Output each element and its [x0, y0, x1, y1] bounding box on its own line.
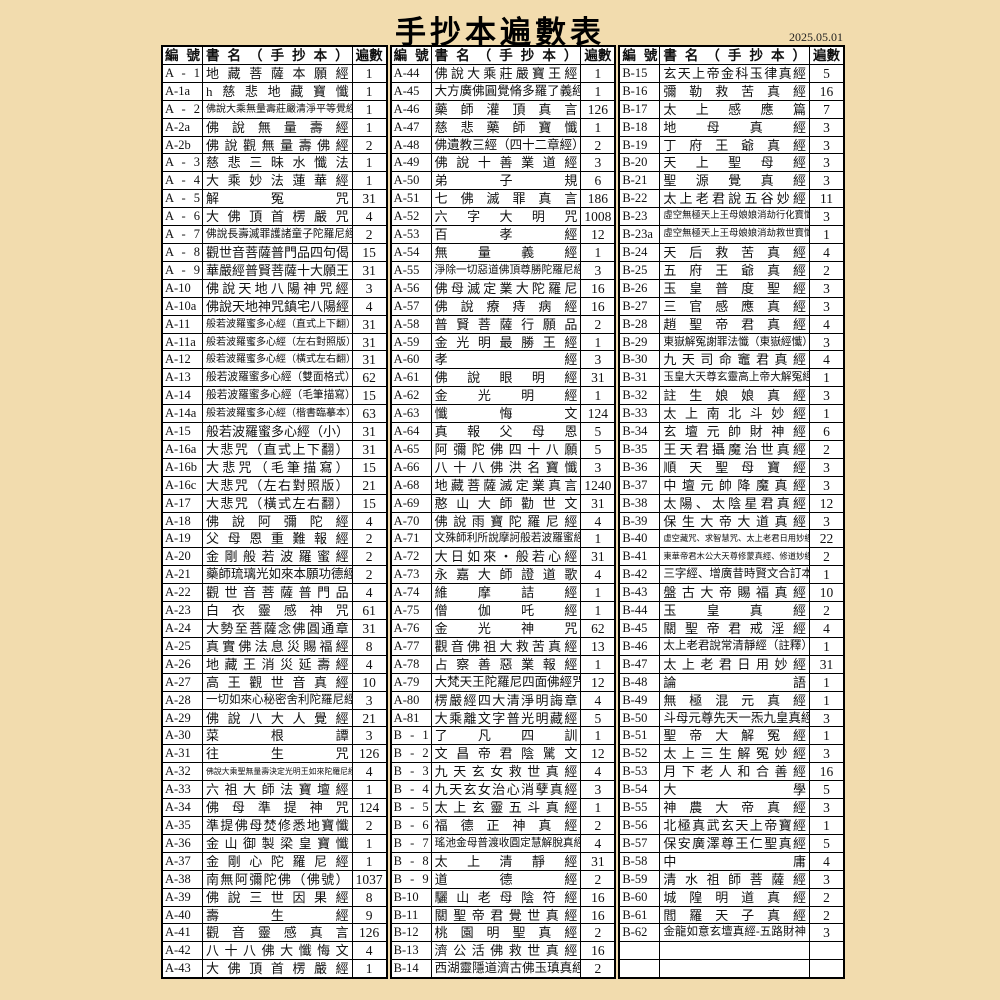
row-id: A-21 [163, 566, 203, 583]
row-title: 地藏王消災延壽經 [203, 656, 353, 673]
row-id: B-22 [620, 190, 660, 207]
row-id: A-77 [392, 638, 432, 655]
row-title: 般若波羅蜜多心經（直式上下翻） [203, 316, 353, 333]
row-count: 62 [581, 620, 614, 637]
row-title: 玉皇普度聖經 [660, 280, 810, 297]
row-title: 神農大帝真經 [660, 799, 810, 816]
row-id: A-10 [163, 280, 203, 297]
row-title: 王天君攝魔治世真經 [660, 441, 810, 458]
table-row: A-70佛說雨寶陀羅尼經4 [392, 512, 615, 530]
row-title: 佛說大乘無量壽莊嚴清淨平等覺經 [203, 101, 353, 118]
row-count: 4 [581, 692, 614, 709]
row-count: 31 [353, 262, 386, 279]
row-title: 金光明經 [432, 387, 582, 404]
table-row: B-12桃園明聖真經2 [392, 923, 615, 941]
row-count: 12 [581, 745, 614, 762]
row-count: 7 [810, 101, 843, 118]
row-count: 3 [810, 137, 843, 154]
table-row: B-41東華帝君木公大天尊修蒙真經、修道妙經2 [620, 547, 843, 565]
row-id: B - 3 [392, 763, 432, 780]
row-id: B-33 [620, 405, 660, 422]
table-row: A-10佛說天地八陽神咒經3 [163, 279, 386, 297]
row-count: 1 [581, 387, 614, 404]
row-title: 大梵天王陀羅尼四面佛經咒 [432, 674, 582, 691]
row-count: 3 [581, 459, 614, 476]
row-count: 31 [810, 656, 843, 673]
row-title: 孝經 [432, 351, 582, 368]
row-id: A-74 [392, 584, 432, 601]
row-id: A-70 [392, 513, 432, 530]
table-row: B-21聖源覺真經3 [620, 171, 843, 189]
row-title: 瑤池金母普渡收圓定慧解脫真經 [432, 835, 582, 852]
row-title: 盤古大帝賜福真經 [660, 584, 810, 601]
row-title: 般若波羅蜜多心經（小） [203, 423, 353, 440]
row-id: B-45 [620, 620, 660, 637]
row-id: A-65 [392, 441, 432, 458]
row-count: 3 [810, 799, 843, 816]
row-title: 佛說無量壽經 [203, 119, 353, 136]
row-title: 北極真武玄天上帝寶經 [660, 817, 810, 834]
row-count: 2 [353, 226, 386, 243]
row-count: 1 [810, 727, 843, 744]
table-row: A-23白衣靈感神咒61 [163, 601, 386, 619]
row-id: A-20 [163, 548, 203, 565]
row-title: 天上聖母經 [660, 154, 810, 171]
table-column: 編號書名（手抄本）遍數A-44佛說大乘莊嚴寶王經1A-45大方廣佛圓覺脩多羅了義… [390, 45, 617, 979]
row-id: B - 7 [392, 835, 432, 852]
header-id: 編號 [620, 47, 660, 64]
row-title: 清水祖師菩薩經 [660, 871, 810, 888]
table-row: A-48佛遺教三經（四十二章經）2 [392, 136, 615, 154]
table-row: B-36順天聖母寶經3 [620, 458, 843, 476]
table-row: A-26地藏王消災延壽經4 [163, 655, 386, 673]
table-row: B-55神農大帝真經3 [620, 798, 843, 816]
row-id: B-28 [620, 316, 660, 333]
row-title: 佛說療痔病經 [432, 298, 582, 315]
row-id: A-42 [163, 942, 203, 959]
table-row: B-31玉皇大天尊玄靈高上帝大解冤經1 [620, 368, 843, 386]
row-count: 31 [353, 334, 386, 351]
row-title: 玉皇真經 [660, 602, 810, 619]
row-count: 4 [581, 763, 614, 780]
table-row: A-13般若波羅蜜多心經（雙面格式）62 [163, 368, 386, 386]
row-id: B-25 [620, 262, 660, 279]
row-title: 太上老君說常清靜經（註釋） [660, 638, 810, 655]
row-count: 31 [581, 548, 614, 565]
row-id: A-49 [392, 154, 432, 171]
row-title: 憨山大師勸世文 [432, 495, 582, 512]
row-title: 普賢菩薩行願品 [432, 316, 582, 333]
row-id: B-27 [620, 298, 660, 315]
row-count: 1 [810, 674, 843, 691]
row-id: A-26 [163, 656, 203, 673]
table-row: A-21藥師琉璃光如來本願功德經2 [163, 565, 386, 583]
table-row: A - 3慈悲三昧水懺法1 [163, 153, 386, 171]
row-id: B-54 [620, 781, 660, 798]
row-id: A-11 [163, 316, 203, 333]
table-row: A-43大佛頂首楞嚴經1 [163, 959, 386, 977]
row-id: B-51 [620, 727, 660, 744]
table-row: B - 4九天玄女治心消孽真經3 [392, 780, 615, 798]
table-row: A-71文殊師利所說摩訶般若波羅蜜經1 [392, 529, 615, 547]
row-id: A-36 [163, 835, 203, 852]
row-title: 往生咒 [203, 745, 353, 762]
table-row: A-31往生咒126 [163, 744, 386, 762]
row-count: 31 [353, 316, 386, 333]
header-row: 編號書名（手抄本）遍數 [392, 47, 615, 64]
table-row: A-69憨山大師勸世文31 [392, 494, 615, 512]
row-count: 1 [810, 226, 843, 243]
row-count [810, 960, 843, 977]
table-row: A-16b大悲咒（毛筆描寫）15 [163, 458, 386, 476]
row-count: 3 [810, 745, 843, 762]
table-row: A-51七佛滅罪真言186 [392, 189, 615, 207]
row-count: 1 [353, 101, 386, 118]
row-count: 2 [353, 566, 386, 583]
row-title: 玄天上帝金科玉律真經 [660, 65, 810, 82]
row-count: 15 [353, 387, 386, 404]
row-title: 順天聖母寶經 [660, 459, 810, 476]
row-title: 大佛頂首楞嚴咒 [203, 208, 353, 225]
row-id: A-60 [392, 351, 432, 368]
row-count: 62 [353, 369, 386, 386]
row-id: B-11 [392, 907, 432, 924]
row-count: 31 [353, 190, 386, 207]
table-row: B-47太上老君日用妙經31 [620, 655, 843, 673]
table-row: A-46藥師灌頂真言126 [392, 100, 615, 118]
row-id: A-14a [163, 405, 203, 422]
row-count: 16 [581, 907, 614, 924]
row-title: 虛空無極天上王母娘娘消劫行化寶懺 [660, 208, 810, 225]
row-id: A-56 [392, 280, 432, 297]
row-title: 三官感應真經 [660, 298, 810, 315]
row-count: 3 [810, 280, 843, 297]
table-row: A - 5解冤咒31 [163, 189, 386, 207]
table-row: B-25五府王爺真經2 [620, 261, 843, 279]
row-count: 1 [581, 727, 614, 744]
row-title: 般若波羅蜜多心經（左右對照版） [203, 334, 353, 351]
table-row: A-24大勢至菩薩念佛圓通章31 [163, 619, 386, 637]
table-row: A-77觀音佛祖大救苦真經13 [392, 637, 615, 655]
row-id: A-35 [163, 817, 203, 834]
row-title: 佛說十善業道經 [432, 154, 582, 171]
row-id: B-10 [392, 889, 432, 906]
row-title: 論語 [660, 674, 810, 691]
row-id: A-46 [392, 101, 432, 118]
row-id: B-13 [392, 942, 432, 959]
table-row: A-76金光神咒62 [392, 619, 615, 637]
row-id: A-76 [392, 620, 432, 637]
row-title: 金光神咒 [432, 620, 582, 637]
row-id: B-56 [620, 817, 660, 834]
table-row: B-58中庸4 [620, 852, 843, 870]
row-count: 4 [353, 208, 386, 225]
row-id: A-78 [392, 656, 432, 673]
table-row: A-37金剛心陀羅尼經1 [163, 852, 386, 870]
row-count: 1008 [581, 208, 614, 225]
row-id: A-58 [392, 316, 432, 333]
row-title: 太上玄靈五斗真經 [432, 799, 582, 816]
row-title: 八十八佛洪名寶懺 [432, 459, 582, 476]
row-title: 觀音靈感真言 [203, 924, 353, 941]
table-row: B-38太陽、太陰星君真經12 [620, 494, 843, 512]
row-id: A-61 [392, 369, 432, 386]
table-row: B-50斗母元尊先天一炁九皇真經3 [620, 709, 843, 727]
table-row: A-64真報父母恩5 [392, 422, 615, 440]
row-id: B-26 [620, 280, 660, 297]
row-title: 七佛滅罪真言 [432, 190, 582, 207]
row-count: 4 [810, 316, 843, 333]
row-count: 5 [810, 781, 843, 798]
table-row: A-2a佛說無量壽經1 [163, 118, 386, 136]
row-count: 16 [581, 942, 614, 959]
row-count: 3 [810, 710, 843, 727]
row-id: A-73 [392, 566, 432, 583]
row-id: A-52 [392, 208, 432, 225]
row-id: A-47 [392, 119, 432, 136]
row-count: 21 [353, 477, 386, 494]
table-row: B-52太上三生解冤妙經3 [620, 744, 843, 762]
table-row: B-11關聖帝君覺世真經16 [392, 906, 615, 924]
row-title: 藥師灌頂真言 [432, 101, 582, 118]
row-title: 楞嚴經四大清淨明誨章 [432, 692, 582, 709]
row-count: 12 [581, 226, 614, 243]
table-row: A-62金光明經1 [392, 386, 615, 404]
row-count: 5 [581, 423, 614, 440]
row-count: 16 [581, 889, 614, 906]
row-title: 占察善惡業報經 [432, 656, 582, 673]
table-row: A-50弟子規6 [392, 171, 615, 189]
row-count: 4 [353, 763, 386, 780]
table-row: A-10a佛說天地神咒鎮宅八陽經4 [163, 297, 386, 315]
row-title: 文殊師利所說摩訶般若波羅蜜經 [432, 530, 582, 547]
table-row: B-16彌勒救苦真經16 [620, 82, 843, 100]
row-count: 3 [810, 477, 843, 494]
row-id: A - 2 [163, 101, 203, 118]
table-row: A-78占察善惡業報經1 [392, 655, 615, 673]
row-count [810, 942, 843, 959]
row-title: 太上感應篇 [660, 101, 810, 118]
row-title: 佛母準提神咒 [203, 799, 353, 816]
row-count: 126 [353, 745, 386, 762]
table-row: B-32註生娘娘真經3 [620, 386, 843, 404]
row-title: 真報父母恩 [432, 423, 582, 440]
row-id: B-43 [620, 584, 660, 601]
row-title: 淨除一切惡道佛頂尊勝陀羅尼經 [432, 262, 582, 279]
table-row: A-16c大悲咒（左右對照版）21 [163, 476, 386, 494]
row-count: 3 [810, 154, 843, 171]
row-count: 3 [810, 459, 843, 476]
row-title: 佛說長壽滅罪護諸童子陀羅尼經 [203, 226, 353, 243]
row-id: B-41 [620, 548, 660, 565]
row-title: 大乘離文字普光明藏經 [432, 710, 582, 727]
row-id: A-13 [163, 369, 203, 386]
row-id: B-21 [620, 172, 660, 189]
row-id: A-68 [392, 477, 432, 494]
row-title: 佛說大乘聖無量壽決定光明王如來陀羅尼經 [203, 763, 353, 780]
table-row: A-68地藏菩薩滅定業真言1240 [392, 476, 615, 494]
table-row: B-24天后救苦真經4 [620, 243, 843, 261]
row-id: B-59 [620, 871, 660, 888]
table-row: A-22觀世音菩薩普門品4 [163, 583, 386, 601]
row-id: B-12 [392, 924, 432, 941]
row-count: 5 [810, 65, 843, 82]
table-row: B-39保生大帝大道真經3 [620, 512, 843, 530]
table-row: B-56北極真武玄天上帝寶經1 [620, 816, 843, 834]
row-id: A-55 [392, 262, 432, 279]
row-title: 藥師琉璃光如來本願功德經 [203, 566, 353, 583]
table-row: B-44玉皇真經2 [620, 601, 843, 619]
row-id: B-46 [620, 638, 660, 655]
row-id: A-57 [392, 298, 432, 315]
row-title: 大勢至菩薩念佛圓通章 [203, 620, 353, 637]
table-row: B-62金龍如意玄壇真經-五路財神3 [620, 923, 843, 941]
table-row: B-33太上南北斗妙經1 [620, 404, 843, 422]
table-row: A-72大日如來・般若心經31 [392, 547, 615, 565]
row-title: 了凡四訓 [432, 727, 582, 744]
row-count: 61 [353, 602, 386, 619]
row-count: 1 [581, 584, 614, 601]
row-count: 1 [581, 334, 614, 351]
row-count: 4 [353, 513, 386, 530]
row-id: A-44 [392, 65, 432, 82]
row-count: 2 [581, 960, 614, 977]
date-label: 2025.05.01 [162, 30, 843, 45]
row-id: B-23a [620, 226, 660, 243]
row-title: 東嶽解冤謝罪法懺（東嶽經懺） [660, 334, 810, 351]
row-count: 1 [353, 853, 386, 870]
row-title: 太陽、太陰星君真經 [660, 495, 810, 512]
row-count: 1 [581, 530, 614, 547]
row-id: A-39 [163, 889, 203, 906]
table-row: A-52六字大明咒1008 [392, 207, 615, 225]
row-id: B - 5 [392, 799, 432, 816]
table-row: A-57佛說療痔病經16 [392, 297, 615, 315]
manuscript-count-table: 編號書名（手抄本）遍數A - 1地藏菩薩本願經1A-1ah慈悲地藏寶懺1A - … [161, 45, 845, 979]
row-count: 3 [810, 924, 843, 941]
row-title: 般若波羅蜜多心經（楷書臨摹本） [203, 405, 353, 422]
table-row: A-75僧伽吒經1 [392, 601, 615, 619]
row-title: 聖源覺真經 [660, 172, 810, 189]
row-count: 3 [810, 513, 843, 530]
row-id: B - 9 [392, 871, 432, 888]
row-id: B-55 [620, 799, 660, 816]
row-title: 斗母元尊先天一炁九皇真經 [660, 710, 810, 727]
table-row: B-17太上感應篇7 [620, 100, 843, 118]
row-title: 佛說眼明經 [432, 369, 582, 386]
row-title: 觀世音菩薩普門品 [203, 584, 353, 601]
row-id: B - 2 [392, 745, 432, 762]
table-row: A - 9華嚴經普賢菩薩十大願王31 [163, 261, 386, 279]
row-title: 佛說大乘莊嚴寶王經 [432, 65, 582, 82]
row-title: 八十八佛大懺悔文 [203, 942, 353, 959]
table-row: A-41觀音靈感真言126 [163, 923, 386, 941]
table-row: A-1ah慈悲地藏寶懺1 [163, 82, 386, 100]
table-row: A-16a大悲咒（直式上下翻）31 [163, 440, 386, 458]
row-title: 金山御製梁皇寶懺 [203, 835, 353, 852]
row-title: 大乘妙法蓮華經 [203, 172, 353, 189]
row-title: 無量義經 [432, 244, 582, 261]
row-id [620, 960, 660, 977]
table-row: A-35準提佛母焚修悉地寶懺2 [163, 816, 386, 834]
table-row: B-22太上老君說五谷妙經11 [620, 189, 843, 207]
row-count: 1 [581, 83, 614, 100]
row-count: 126 [581, 101, 614, 118]
row-id: B-35 [620, 441, 660, 458]
row-count: 31 [581, 495, 614, 512]
row-id: A-14 [163, 387, 203, 404]
row-id: A-40 [163, 907, 203, 924]
table-row: A-60孝經3 [392, 350, 615, 368]
table-row: A-38南無阿彌陀佛（佛號）1037 [163, 870, 386, 888]
row-id: A-34 [163, 799, 203, 816]
row-count: 4 [353, 584, 386, 601]
row-id: B-17 [620, 101, 660, 118]
table-row: A-36金山御製梁皇寶懺1 [163, 834, 386, 852]
table-column: 編號書名（手抄本）遍數A - 1地藏菩薩本願經1A-1ah慈悲地藏寶懺1A - … [161, 45, 388, 979]
row-title: 大悲咒（橫式左右翻） [203, 495, 353, 512]
row-title: 道德經 [432, 871, 582, 888]
row-title: 桃園明聖真經 [432, 924, 582, 941]
table-row: B-59清水祖師菩薩經3 [620, 870, 843, 888]
row-title: 南無阿彌陀佛（佛號） [203, 871, 353, 888]
table-row: A-74維摩詰經1 [392, 583, 615, 601]
row-title: 大悲咒（直式上下翻） [203, 441, 353, 458]
row-id: B-18 [620, 119, 660, 136]
row-title: 九天玄女治心消孽真經 [432, 781, 582, 798]
row-id: A-59 [392, 334, 432, 351]
row-title: 保安廣澤尊王仁聖真經 [660, 835, 810, 852]
row-count: 1 [581, 119, 614, 136]
row-title: 無極混元真經 [660, 692, 810, 709]
row-count: 2 [810, 602, 843, 619]
row-title: 永嘉大師證道歌 [432, 566, 582, 583]
header-id: 編號 [163, 47, 203, 64]
row-count: 3 [581, 154, 614, 171]
row-count: 4 [353, 298, 386, 315]
row-title: 文昌帝君陰騭文 [432, 745, 582, 762]
row-count: 16 [810, 763, 843, 780]
table-row: B-18地母真經3 [620, 118, 843, 136]
header-title: 書名（手抄本） [432, 47, 582, 64]
header-title: 書名（手抄本） [660, 47, 810, 64]
row-count: 31 [581, 853, 614, 870]
row-id: A - 9 [163, 262, 203, 279]
row-title: 般若波羅蜜多心經（橫式左右翻） [203, 351, 353, 368]
document-page: 手抄本遍數表 2025.05.01 編號書名（手抄本）遍數A - 1地藏菩薩本願… [0, 0, 1000, 1000]
table-row: A-49佛說十善業道經3 [392, 153, 615, 171]
row-id: A-45 [392, 83, 432, 100]
row-id: B-36 [620, 459, 660, 476]
row-id: A-27 [163, 674, 203, 691]
row-id: A-24 [163, 620, 203, 637]
table-row: B-26玉皇普度聖經3 [620, 279, 843, 297]
table-row: B-46太上老君說常清靜經（註釋）1 [620, 637, 843, 655]
row-title: 地藏菩薩本願經 [203, 65, 353, 82]
row-count: 3 [810, 298, 843, 315]
row-title: 父母恩重難報經 [203, 530, 353, 547]
table-column: 編號書名（手抄本）遍數B-15玄天上帝金科玉律真經5B-16彌勒救苦真經16B-… [618, 45, 845, 979]
row-id: B-48 [620, 674, 660, 691]
row-count: 8 [353, 889, 386, 906]
row-title: 壽生經 [203, 907, 353, 924]
row-title: 天后救苦真經 [660, 244, 810, 261]
row-count: 4 [581, 835, 614, 852]
row-id: A-28 [163, 692, 203, 709]
row-count: 3 [581, 262, 614, 279]
table-row [620, 959, 843, 977]
row-count: 9 [353, 907, 386, 924]
